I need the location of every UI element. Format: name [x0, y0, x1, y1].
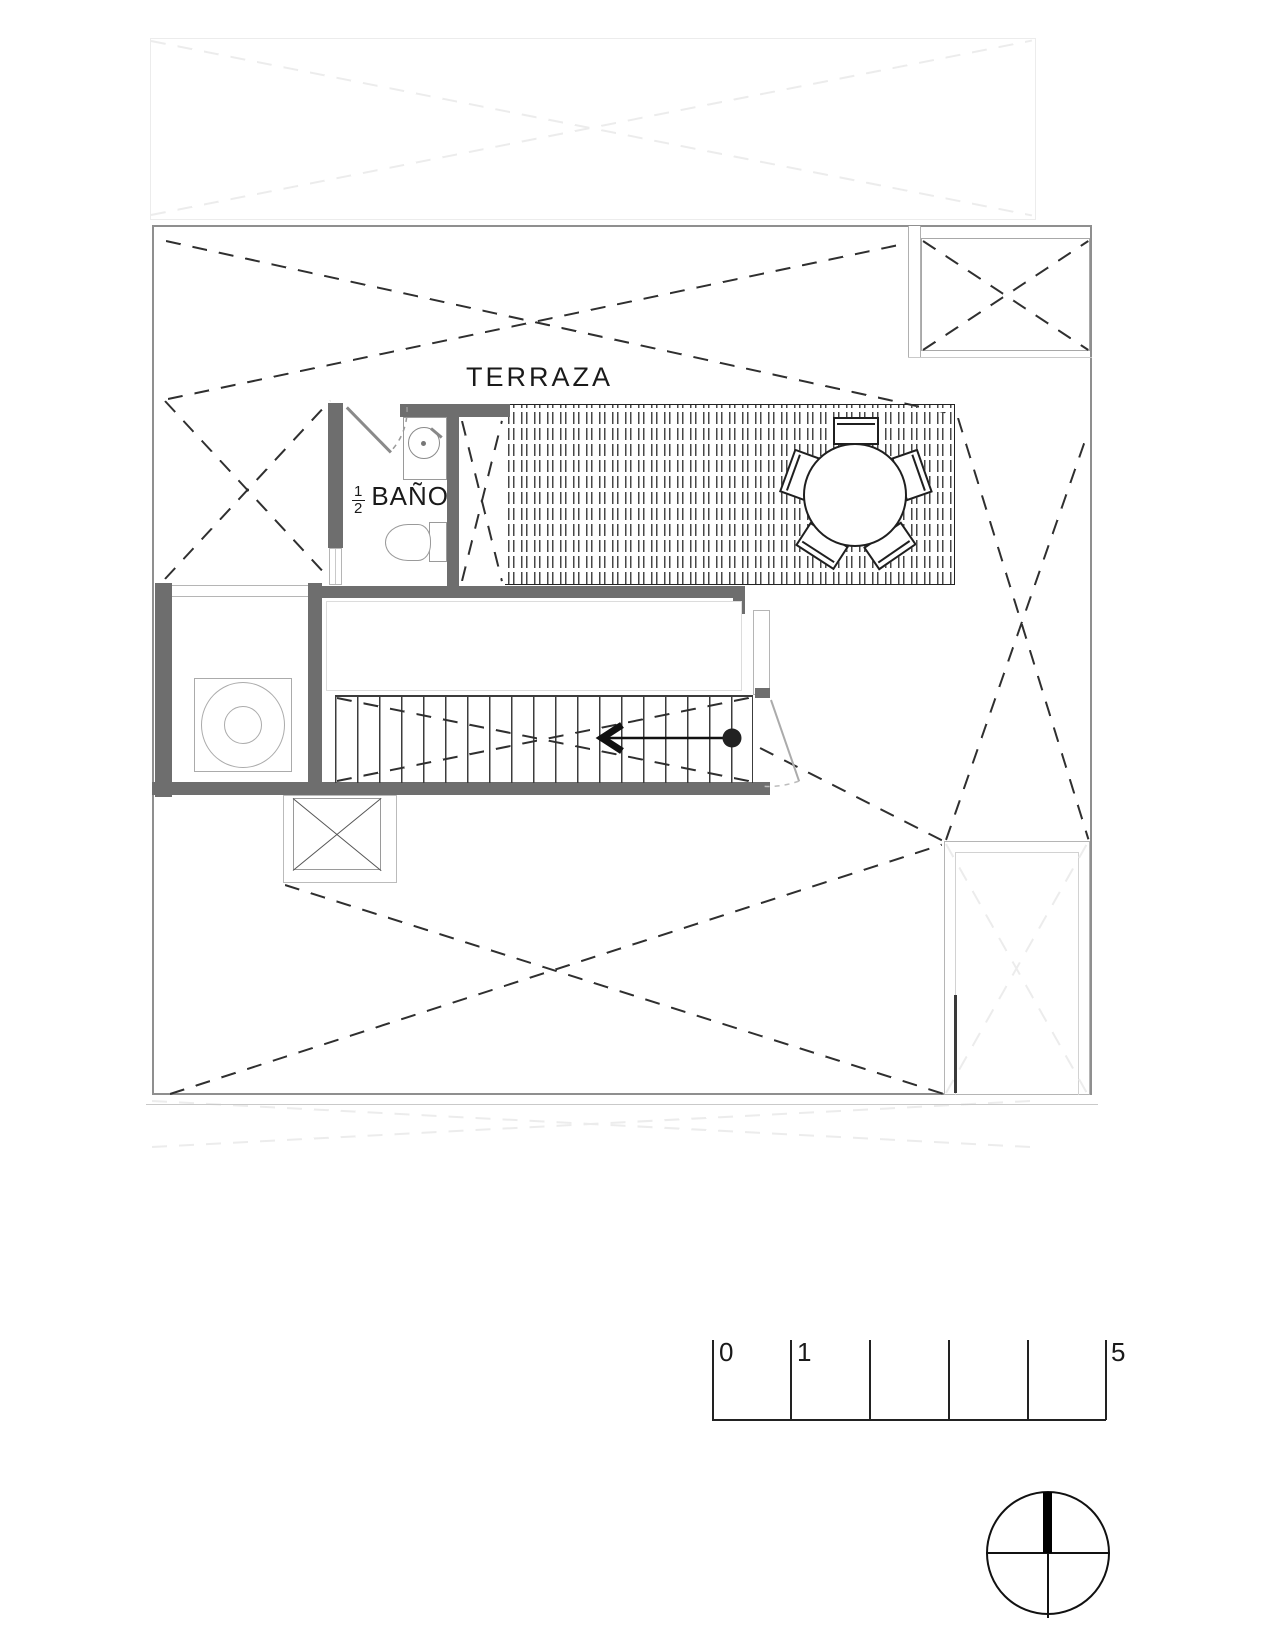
- bathroom-door-swing-arc: [391, 407, 407, 451]
- stair-door-swing-arc: [760, 781, 799, 786]
- scale-label-0: 0: [719, 1337, 733, 1368]
- scale-label-5: 5: [1111, 1337, 1125, 1368]
- scale-label-1: 1: [797, 1337, 811, 1368]
- half-fraction: 1 2: [352, 484, 365, 516]
- scale-tick: [1105, 1340, 1107, 1420]
- floor-plan-page: TERRAZA 1 2 BAÑO 0 1 5: [0, 0, 1275, 1650]
- scale-tick: [790, 1340, 792, 1420]
- scale-tick: [1027, 1340, 1029, 1420]
- stair-direction-arrow: [602, 725, 742, 751]
- compass-vertical-line: [1047, 1553, 1049, 1618]
- plan-symbol-overlay: [0, 0, 1275, 1650]
- bath-text: BAÑO: [371, 481, 449, 511]
- scale-tick: [948, 1340, 950, 1420]
- terrace-label: TERRAZA: [437, 362, 642, 393]
- scale-tick: [712, 1340, 714, 1420]
- half-bath-label: 1 2 BAÑO: [352, 481, 449, 516]
- scale-baseline: [712, 1419, 1106, 1421]
- compass-north-bar: [1043, 1492, 1052, 1553]
- scale-tick: [869, 1340, 871, 1420]
